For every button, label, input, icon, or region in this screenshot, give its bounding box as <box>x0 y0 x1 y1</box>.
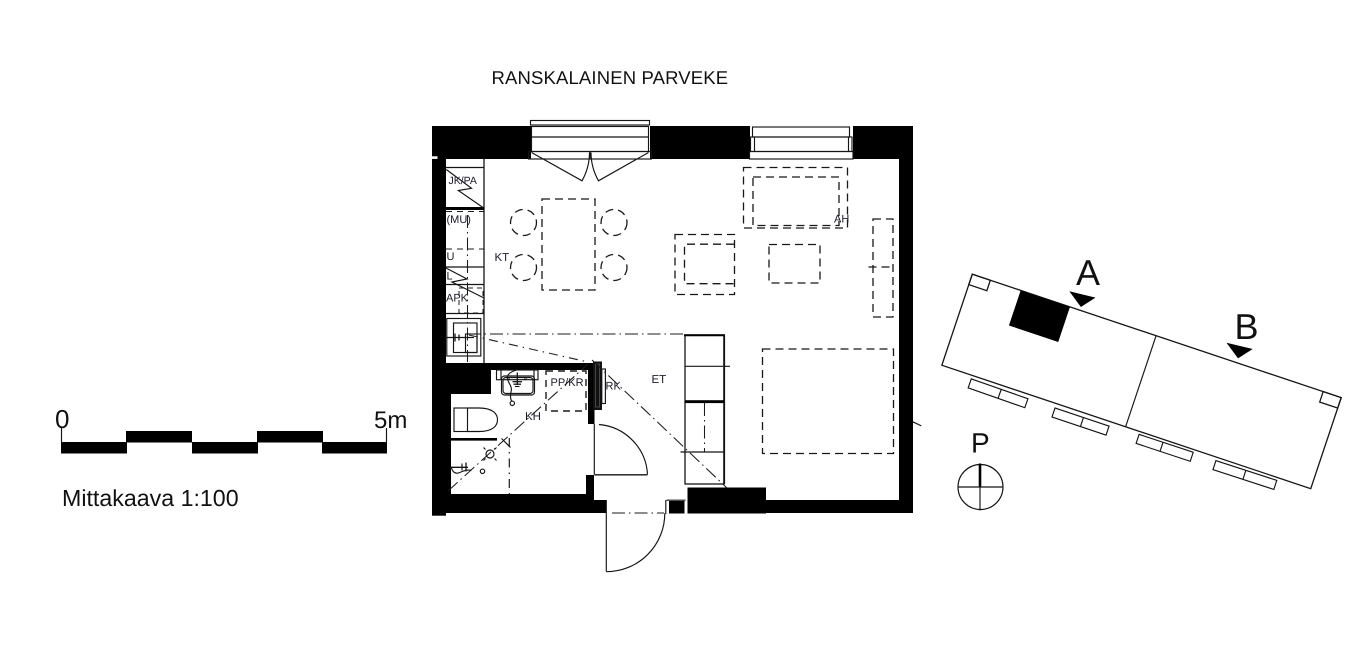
svg-text:A: A <box>1076 252 1100 293</box>
svg-text:KH: KH <box>525 411 541 423</box>
svg-text:Mittakaava 1:100: Mittakaava 1:100 <box>62 485 239 511</box>
svg-text:JK/PA: JK/PA <box>449 175 477 187</box>
svg-text:APK: APK <box>446 293 469 305</box>
svg-text:RK: RK <box>606 381 622 393</box>
svg-text:KT: KT <box>495 252 510 264</box>
svg-text:U: U <box>447 251 455 263</box>
svg-text:5m: 5m <box>374 407 407 434</box>
svg-text:(MU): (MU) <box>447 214 471 226</box>
svg-text:P: P <box>971 428 990 459</box>
svg-text:AH: AH <box>834 214 849 226</box>
svg-text:RANSKALAINEN PARVEKE: RANSKALAINEN PARVEKE <box>492 67 729 88</box>
svg-text:0: 0 <box>55 404 69 434</box>
svg-text:B: B <box>1235 306 1259 347</box>
svg-text:L: L <box>447 270 453 282</box>
svg-text:ET: ET <box>652 374 667 386</box>
